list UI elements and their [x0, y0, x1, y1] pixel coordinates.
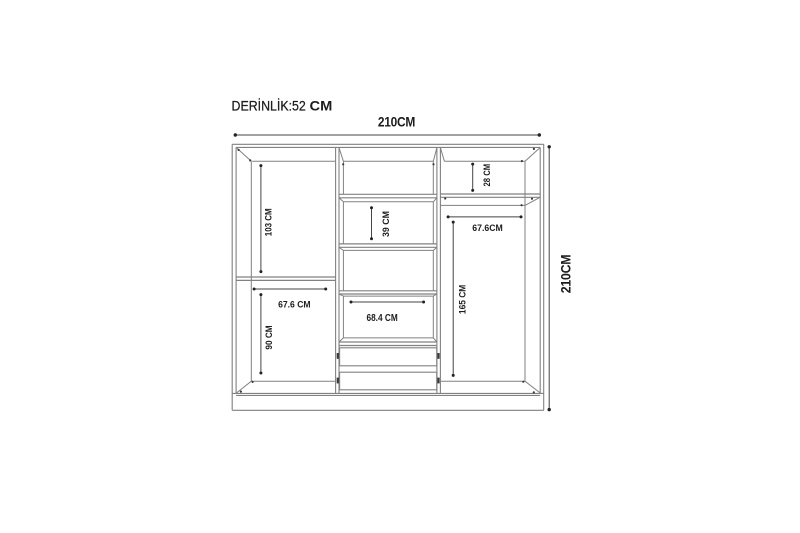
- svg-text:39 CM: 39 CM: [381, 211, 392, 237]
- svg-text:90 CM: 90 CM: [264, 325, 275, 349]
- svg-text:67.6 CM: 67.6 CM: [278, 300, 311, 311]
- svg-text:67.6CM: 67.6CM: [472, 223, 503, 233]
- svg-text:68.4 CM: 68.4 CM: [367, 313, 398, 324]
- svg-text:165 CM: 165 CM: [458, 285, 469, 314]
- svg-text:DERİNLİK:52: DERİNLİK:52: [232, 99, 306, 114]
- svg-text:CM: CM: [310, 99, 333, 114]
- svg-text:210CM: 210CM: [558, 255, 574, 294]
- svg-text:28 CM: 28 CM: [482, 164, 493, 187]
- svg-text:210CM: 210CM: [378, 113, 415, 129]
- svg-text:103 CM: 103 CM: [264, 208, 275, 236]
